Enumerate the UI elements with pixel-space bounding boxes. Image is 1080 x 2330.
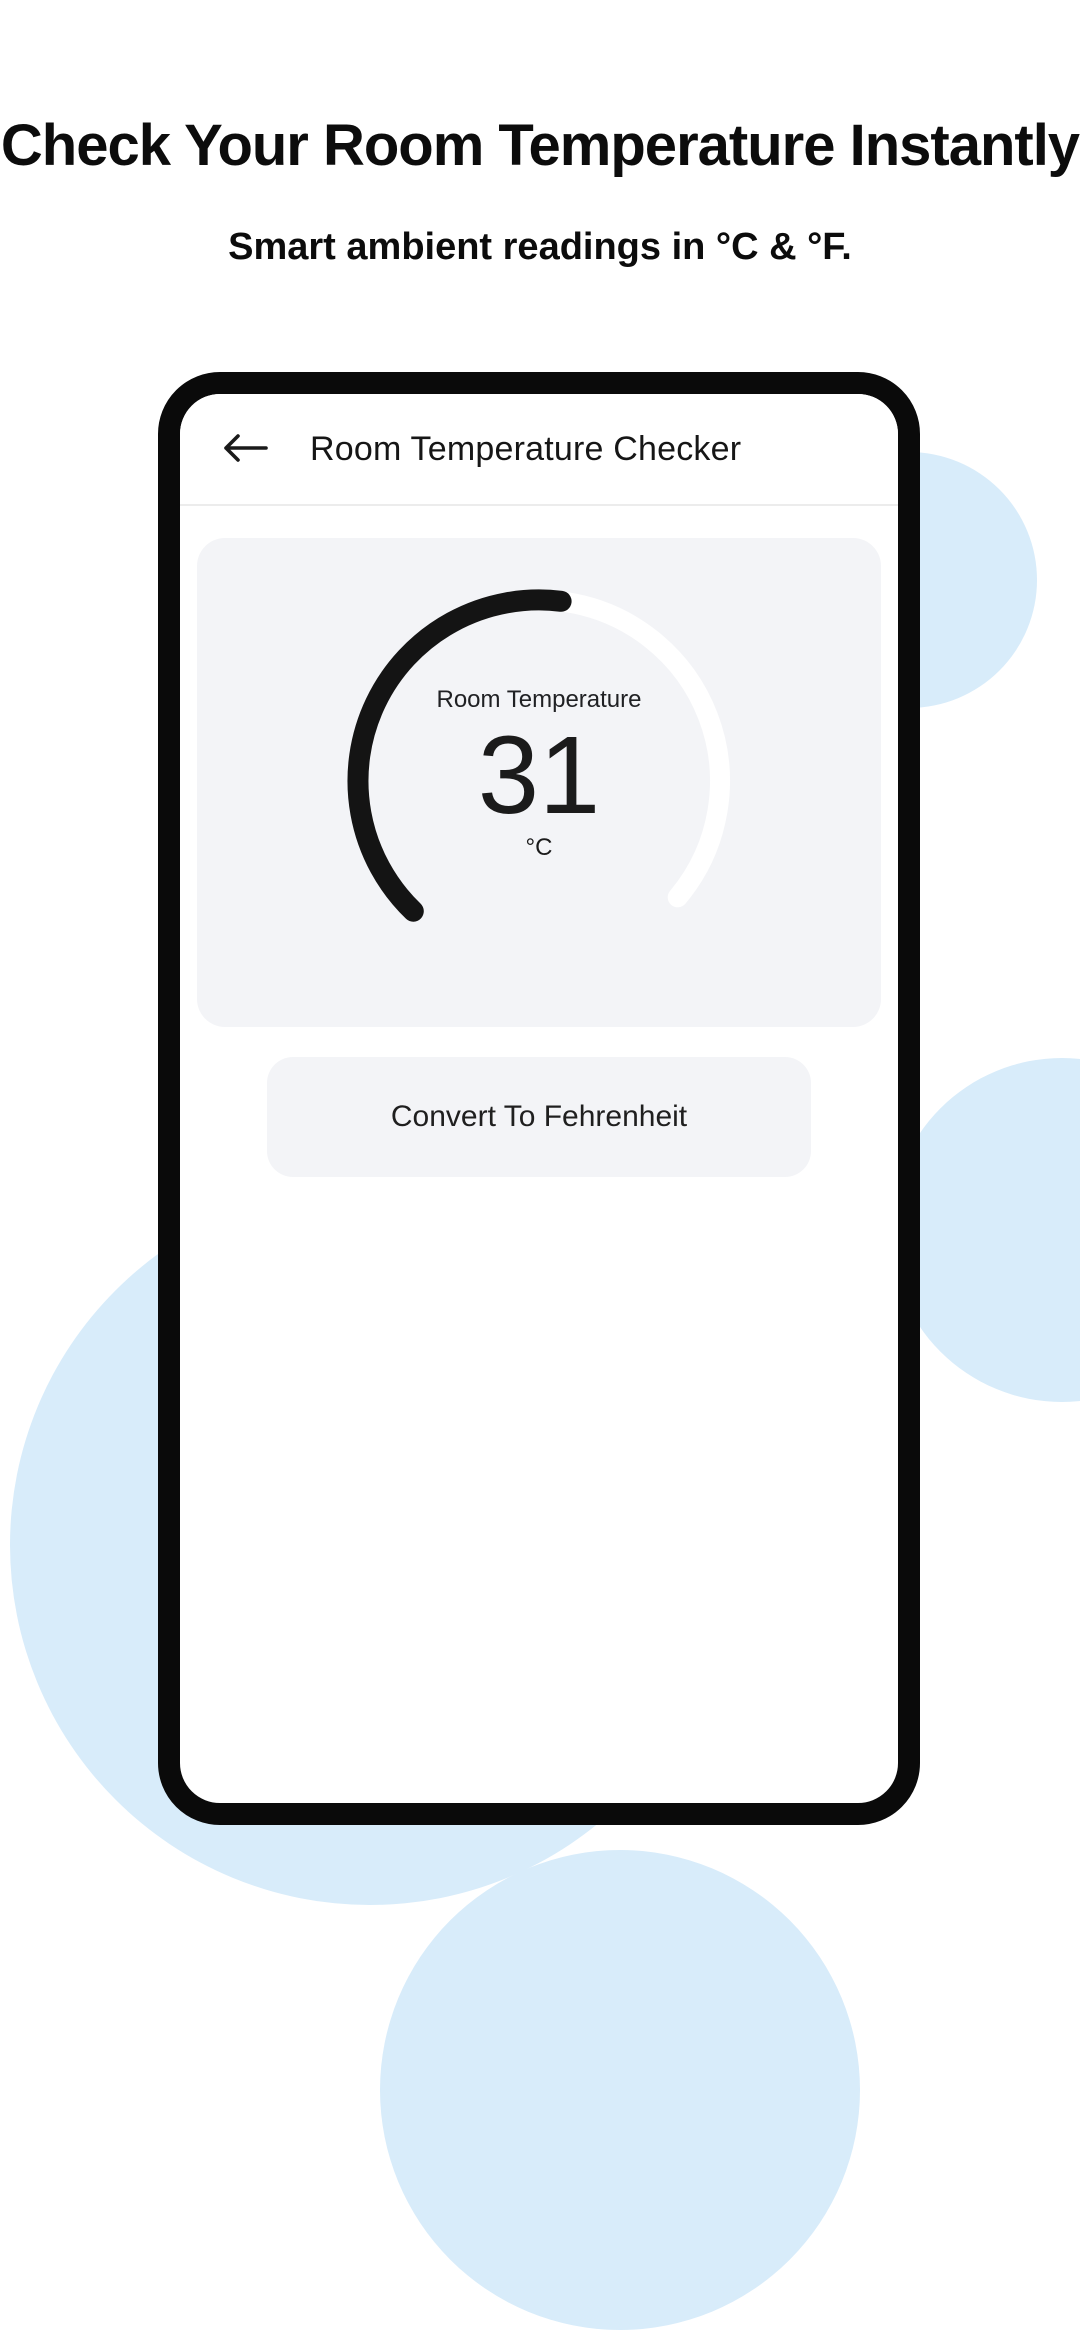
gauge-value: 31 [197,720,881,832]
background-circle-bottom-center [380,1850,860,2330]
convert-to-fahrenheit-button[interactable]: Convert To Fehrenheit [267,1057,811,1177]
gauge-label: Room Temperature [197,686,881,714]
phone-content: Room Temperature 31 °C Convert To Fehren… [180,506,898,1177]
gauge-card: Room Temperature 31 °C [197,538,881,1027]
gauge-unit: °C [197,834,881,862]
page-subheading: Smart ambient readings in °C & °F. [0,226,1080,269]
phone-mockup-frame: Room Temperature Checker Room Temperatur… [158,372,920,1825]
arrow-left-icon [222,433,268,466]
app-bar: Room Temperature Checker [180,394,898,504]
page-heading: Check Your Room Temperature Instantly [0,112,1080,179]
gauge-readout: Room Temperature 31 °C [197,686,881,862]
app-bar-title: Room Temperature Checker [310,430,741,469]
convert-button-label: Convert To Fehrenheit [391,1100,687,1134]
back-button[interactable] [222,434,268,464]
